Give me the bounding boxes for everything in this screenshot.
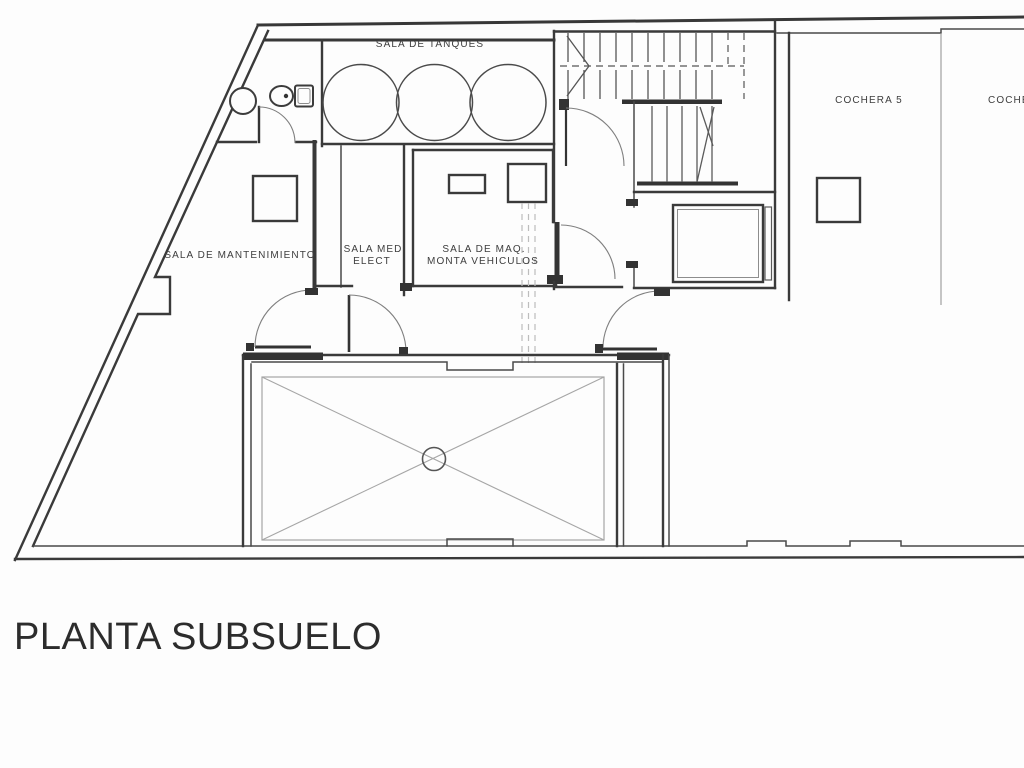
corridor	[243, 288, 670, 370]
room-sala-de-tanques: SALA DE TANQUES	[322, 39, 554, 146]
tank-icon	[470, 65, 546, 141]
column-circle	[230, 88, 256, 114]
elevator-car	[673, 205, 763, 282]
vestibule	[554, 31, 624, 289]
toilet-icon	[270, 86, 313, 107]
column-square	[817, 178, 860, 222]
room-label-cochera-next: COCHERA	[988, 95, 1024, 106]
tank-icon	[397, 65, 473, 141]
equipment-box	[449, 175, 485, 193]
elevator-counterweight	[765, 207, 772, 280]
room-monta-vehiculos: SALA DE MAQ. MONTA VEHICULOS	[400, 150, 615, 368]
room-label-tanques: SALA DE TANQUES	[376, 39, 484, 50]
screenshot-canvas: SALA DE TANQUES SALA DE MANTENIMIENTO SA…	[0, 0, 1024, 768]
room-label-med-elect-2: ELECT	[353, 256, 391, 267]
room-label-mantenimiento: SALA DE MANTENIMIENTO	[164, 250, 315, 261]
bathroom	[217, 40, 554, 143]
equipment-square	[253, 176, 297, 221]
lift-machine-square	[508, 164, 546, 202]
tank-icon	[323, 65, 399, 141]
cocheras: COCHERA 5 COCHERA	[789, 33, 1024, 305]
room-mantenimiento: SALA DE MANTENIMIENTO	[164, 140, 318, 351]
room-label-cochera5: COCHERA 5	[835, 95, 903, 106]
lift-pit	[243, 355, 669, 546]
room-label-maq-1: SALA DE MAQ.	[442, 244, 525, 255]
room-label-maq-2: MONTA VEHICULOS	[427, 256, 539, 267]
elevator	[634, 192, 775, 288]
room-med-elect: SALA MED. ELECT	[314, 146, 408, 354]
room-label-med-elect-1: SALA MED.	[344, 244, 407, 255]
staircase	[554, 20, 775, 288]
page-title: PLANTA SUBSUELO	[14, 616, 382, 659]
stair-treads-lower	[652, 106, 714, 182]
